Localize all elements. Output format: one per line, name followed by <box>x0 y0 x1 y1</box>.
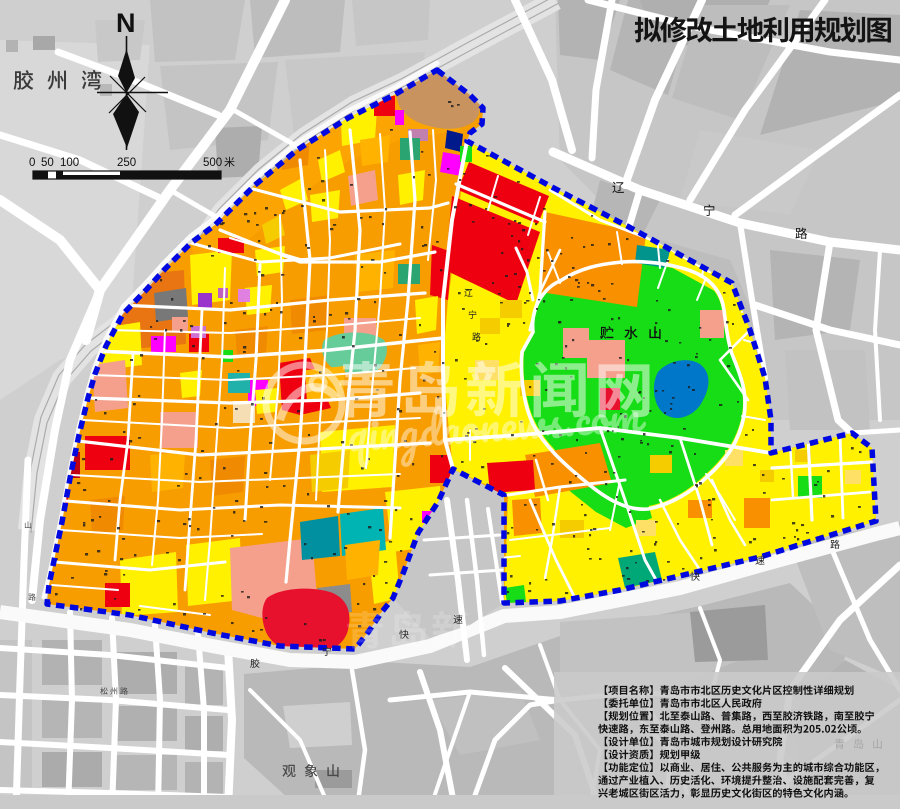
svg-text:0: 0 <box>29 157 35 169</box>
svg-text:500: 500 <box>203 157 222 169</box>
svg-text:50: 50 <box>41 157 54 169</box>
svg-text:100: 100 <box>60 157 79 169</box>
svg-text:N: N <box>116 8 136 38</box>
svg-text:250: 250 <box>117 157 136 169</box>
